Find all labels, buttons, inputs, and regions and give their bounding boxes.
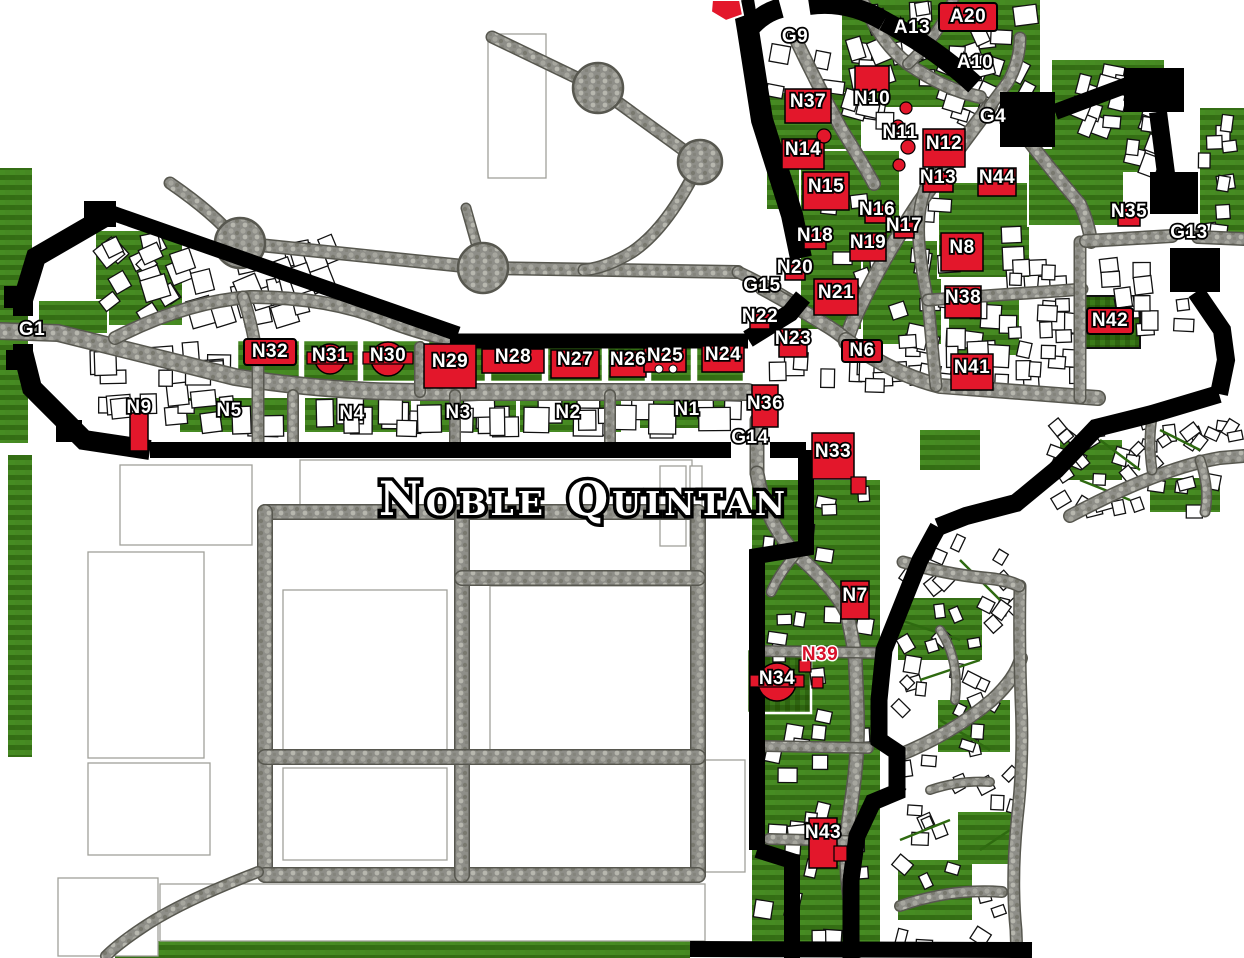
marker-N9: [130, 413, 148, 451]
map-label-N44: N44: [979, 167, 1015, 188]
map-label-N16: N16: [859, 199, 895, 220]
map-label-N42: N42: [1092, 310, 1128, 331]
wall-tower: [1150, 172, 1198, 214]
map-label-N13: N13: [920, 167, 956, 188]
map-label-G13: G13: [1170, 222, 1207, 243]
city-map: N32N31N30N29N28N27N26N25N24N23N22N21N20N…: [0, 0, 1244, 958]
wall-tower: [84, 201, 116, 227]
map-label-N36: N36: [747, 393, 783, 414]
map-label-N25: N25: [647, 345, 683, 366]
wall-tower: [6, 350, 30, 370]
plaza-circle: [678, 140, 722, 184]
map-label-N6: N6: [849, 340, 874, 361]
map-label-N33: N33: [815, 441, 851, 462]
map-label-A10: A10: [957, 52, 993, 73]
map-label-N27: N27: [557, 349, 593, 370]
map-label-N26: N26: [610, 349, 646, 370]
map-label-N21: N21: [818, 282, 854, 303]
wall-tower: [1124, 68, 1184, 112]
map-label-N41: N41: [954, 357, 990, 378]
wall-tower: [4, 286, 30, 308]
map-label-N9: N9: [126, 397, 151, 418]
red-annex-building: [834, 846, 847, 861]
door-dot: [669, 365, 677, 373]
wall-tower: [1000, 92, 1055, 147]
map-label-A20: A20: [950, 6, 986, 27]
map-label-G9: G9: [782, 26, 808, 47]
map-label-N10: N10: [854, 88, 890, 109]
map-label-N29: N29: [432, 351, 468, 372]
map-label-N3: N3: [445, 402, 470, 423]
map-label-N39: N39: [802, 644, 838, 665]
map-label-G15: G15: [743, 275, 780, 296]
wall-tower: [1170, 248, 1220, 292]
map-label-G14: G14: [731, 427, 768, 448]
plaza-circle: [458, 243, 508, 293]
map-title: Noble Quintan: [379, 472, 789, 527]
map-label-N14: N14: [785, 139, 821, 160]
map-label-N32: N32: [252, 341, 288, 362]
red-annex-building: [851, 477, 866, 494]
map-label-G1: G1: [19, 319, 45, 340]
door-dot: [655, 365, 663, 373]
red-annex-building: [812, 677, 823, 688]
map-label-N31: N31: [312, 345, 348, 366]
plaza-circle: [573, 63, 623, 113]
map-label-N11: N11: [882, 122, 917, 143]
wall-tower: [56, 420, 82, 442]
map-label-N37: N37: [790, 91, 826, 112]
map-label-N24: N24: [705, 344, 741, 365]
map-label-N4: N4: [339, 403, 364, 424]
map-label-N8: N8: [949, 237, 974, 258]
map-label-N5: N5: [216, 400, 241, 421]
map-label-N15: N15: [808, 176, 844, 197]
map-label-G4: G4: [980, 106, 1006, 127]
map-label-N1: N1: [674, 399, 699, 420]
map-label-N43: N43: [805, 822, 841, 843]
map-label-N23: N23: [775, 328, 811, 349]
map-label-A13: A13: [894, 17, 930, 38]
map-label-N20: N20: [777, 257, 813, 278]
map-label-N30: N30: [370, 345, 406, 366]
map-label-N38: N38: [945, 287, 981, 308]
map-label-N35: N35: [1111, 201, 1147, 222]
map-label-N34: N34: [759, 668, 795, 689]
map-label-N12: N12: [926, 133, 962, 154]
map-label-N19: N19: [850, 232, 886, 253]
map-label-N28: N28: [495, 346, 531, 367]
map-label-N2: N2: [555, 402, 580, 423]
red-dot-building: [900, 102, 912, 114]
red-dot-building: [893, 159, 905, 171]
map-label-N18: N18: [797, 225, 833, 246]
map-label-N7: N7: [842, 585, 867, 606]
city-map-stage: N32N31N30N29N28N27N26N25N24N23N22N21N20N…: [0, 0, 1244, 958]
map-label-N22: N22: [742, 306, 778, 327]
